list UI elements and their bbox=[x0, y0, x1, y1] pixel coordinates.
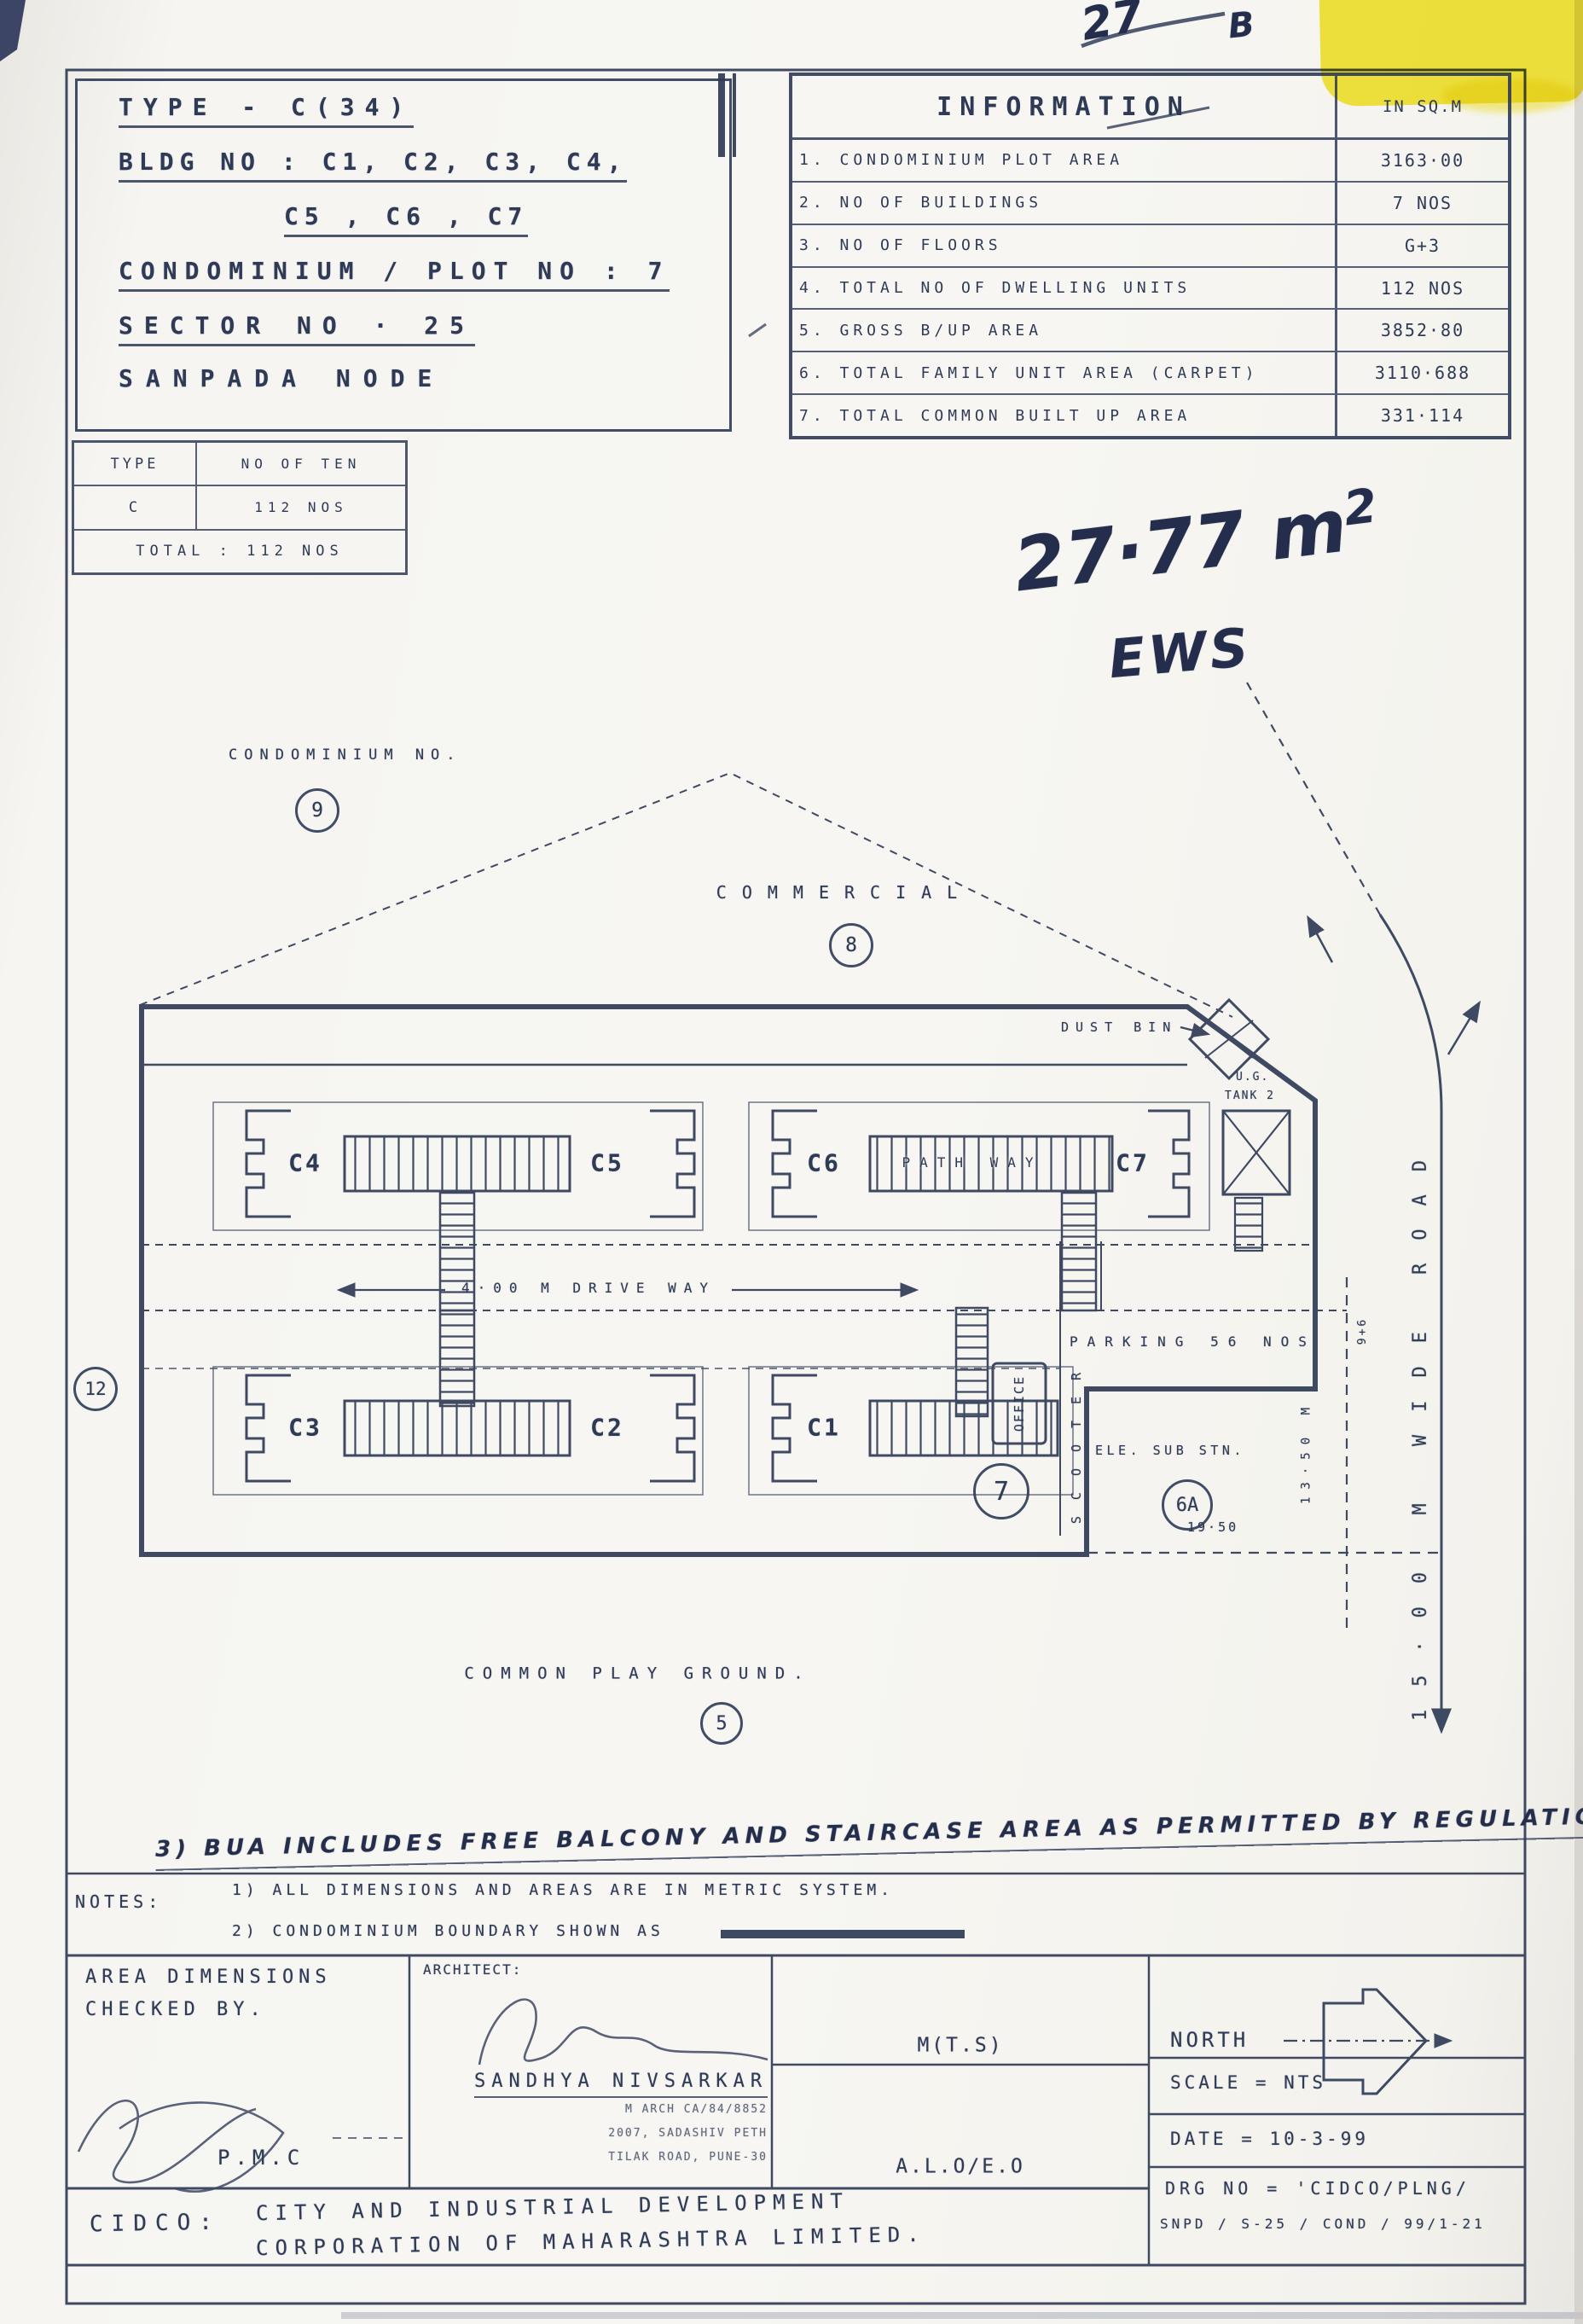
table-row: 5. GROSS B/UP AREA3852·80 bbox=[792, 310, 1508, 352]
row-label: 6. TOTAL FAMILY UNIT AREA (CARPET) bbox=[792, 352, 1335, 393]
title-bldg-2: C5 , C6 , C7 bbox=[284, 204, 528, 237]
building-label-c4: C4 bbox=[288, 1151, 322, 1177]
drg-no-line1: DRG NO = 'CIDCO/PLNG/ bbox=[1165, 2179, 1470, 2198]
authority-mts: M(T.S) bbox=[917, 2035, 1003, 2056]
table-row: C 112 NOS bbox=[74, 486, 405, 530]
play-ground-label: COMMON PLAY GROUND. bbox=[464, 1665, 811, 1683]
table-row: 7. TOTAL COMMON BUILT UP AREA331·114 bbox=[792, 395, 1508, 436]
plot-boundary bbox=[142, 1007, 1315, 1554]
information-header: INFORMATION IN SQ.M bbox=[792, 76, 1508, 140]
handwritten-ews-note: EWS bbox=[1106, 619, 1254, 689]
information-unit: IN SQ.M bbox=[1335, 76, 1508, 137]
condominium-no-label: CONDOMINIUM NO. bbox=[229, 747, 462, 764]
table-row: TYPE NO OF TEN bbox=[74, 443, 405, 486]
plot-circle-7: 7 bbox=[973, 1463, 1029, 1519]
title-type: TYPE - C(34) bbox=[119, 95, 414, 128]
building-label-c6: C6 bbox=[807, 1151, 841, 1177]
drawing-sheet: 27 B TYPE - C(34) BLDG NO : C1, C2, C3, … bbox=[0, 0, 1583, 2324]
parcel-circle-9: 9 bbox=[295, 788, 339, 833]
architect-signature bbox=[479, 2000, 768, 2065]
drive-way-label: 4·00 M DRIVE WAY bbox=[461, 1281, 716, 1296]
tenement-type-header: TYPE bbox=[74, 443, 197, 485]
dimension-19-50: 19·50 bbox=[1187, 1520, 1238, 1535]
stair-ladders bbox=[440, 1193, 1096, 1416]
title-plot: CONDOMINIUM / PLOT NO : 7 bbox=[119, 259, 670, 292]
row-value: G+3 bbox=[1335, 225, 1508, 266]
handwritten-corner-note-b: B bbox=[1226, 6, 1256, 46]
table-row: TOTAL : 112 NOS bbox=[74, 531, 405, 572]
information-title: INFORMATION bbox=[792, 76, 1335, 137]
ug-tank-label-1: U.G. bbox=[1236, 1072, 1269, 1084]
office-label: OFFICE bbox=[1012, 1375, 1027, 1432]
row-label: 2. NO OF BUILDINGS bbox=[792, 183, 1335, 224]
parcel-circle-12: 12 bbox=[73, 1367, 118, 1411]
table-row: 2. NO OF BUILDINGS7 NOS bbox=[792, 183, 1508, 225]
row-label: 1. CONDOMINIUM PLOT AREA bbox=[792, 140, 1335, 181]
tenement-total: TOTAL : 112 NOS bbox=[74, 531, 405, 572]
row-value: 3163·00 bbox=[1335, 140, 1508, 181]
dust-bin-label: DUST BIN bbox=[1061, 1020, 1177, 1035]
area-note-superscript: 2 bbox=[1341, 478, 1380, 536]
checked-by-org: P.M.C bbox=[217, 2147, 304, 2169]
building-label-c2: C2 bbox=[590, 1415, 624, 1442]
title-bldg-1: BLDG NO : C1, C2, C3, C4, bbox=[119, 149, 627, 183]
tenement-table: TYPE NO OF TEN C 112 NOS TOTAL : 112 NOS bbox=[72, 440, 408, 575]
parking-label: PARKING 56 NOS bbox=[1070, 1334, 1316, 1350]
note-1: 1) ALL DIMENSIONS AND AREAS ARE IN METRI… bbox=[232, 1882, 894, 1899]
ele-sub-stn-label: ELE. SUB STN. bbox=[1095, 1444, 1245, 1458]
architect-reg: M ARCH CA/84/8852 bbox=[546, 2104, 768, 2116]
building-label-c3: C3 bbox=[288, 1415, 322, 1442]
dimension-13-50: 13·50 M bbox=[1300, 1400, 1313, 1504]
note-2: 2) CONDOMINIUM BOUNDARY SHOWN AS bbox=[232, 1923, 664, 1940]
authority-alo: A.L.O/E.O bbox=[896, 2156, 1025, 2177]
date-value: DATE = 10-3-99 bbox=[1170, 2129, 1369, 2149]
row-value: 112 NOS bbox=[1335, 268, 1508, 309]
row-value: 7 NOS bbox=[1335, 183, 1508, 224]
table-row: 6. TOTAL FAMILY UNIT AREA (CARPET)3110·6… bbox=[792, 352, 1508, 395]
boundary-legend-bar bbox=[721, 1930, 965, 1938]
architect-label: ARCHITECT: bbox=[423, 1962, 522, 1978]
row-label: 4. TOTAL NO OF DWELLING UNITS bbox=[792, 268, 1335, 309]
parcel-circle-5: 5 bbox=[700, 1702, 743, 1745]
ug-tank-symbol bbox=[1223, 1111, 1290, 1251]
dimension-corner: 9+6 bbox=[1357, 1317, 1369, 1345]
scale-value: SCALE = NTS bbox=[1170, 2073, 1326, 2093]
row-value: 3852·80 bbox=[1335, 310, 1508, 351]
row-label: 5. GROSS B/UP AREA bbox=[792, 310, 1335, 351]
building-label-c7: C7 bbox=[1116, 1151, 1150, 1177]
org-abbr: CIDCO: bbox=[90, 2211, 221, 2237]
table-row: 1. CONDOMINIUM PLOT AREA3163·00 bbox=[792, 140, 1508, 183]
building-label-c1: C1 bbox=[807, 1415, 841, 1442]
architect-addr2: TILAK ROAD, PUNE-30 bbox=[546, 2152, 768, 2164]
architect-name: SANDHYA NIVSARKAR bbox=[474, 2071, 768, 2098]
drg-no-line2: SNPD / S-25 / COND / 99/1-21 bbox=[1160, 2217, 1486, 2232]
row-value: 3110·688 bbox=[1335, 352, 1508, 393]
title-sector: SECTOR NO · 25 bbox=[119, 313, 475, 346]
scooter-label: SCOOTER bbox=[1070, 1357, 1084, 1524]
commercial-label: COMMERCIAL bbox=[716, 883, 972, 902]
title-block: TYPE - C(34) BLDG NO : C1, C2, C3, C4, C… bbox=[75, 78, 732, 432]
row-label: 3. NO OF FLOORS bbox=[792, 225, 1335, 266]
information-table: INFORMATION IN SQ.M 1. CONDOMINIUM PLOT … bbox=[789, 73, 1511, 439]
tenement-type: C bbox=[74, 486, 197, 528]
tenement-count: 112 NOS bbox=[197, 486, 405, 528]
checked-by-line2: CHECKED BY. bbox=[85, 2000, 266, 2020]
building-label-c5: C5 bbox=[590, 1151, 624, 1177]
architect-addr1: 2007, SADASHIV PETH bbox=[546, 2128, 768, 2140]
table-row: 4. TOTAL NO OF DWELLING UNITS112 NOS bbox=[792, 268, 1508, 311]
road-label: 15·00 M WIDE ROAD bbox=[1411, 1137, 1431, 1721]
ug-tank-label-2: TANK 2 bbox=[1225, 1090, 1275, 1102]
table-row: 3. NO OF FLOORSG+3 bbox=[792, 225, 1508, 268]
north-label: NORTH bbox=[1170, 2029, 1249, 2051]
notes-label: NOTES: bbox=[75, 1892, 162, 1911]
tenement-count-header: NO OF TEN bbox=[197, 443, 405, 485]
checked-by-line1: AREA DIMENSIONS bbox=[85, 1967, 332, 1988]
row-value: 331·114 bbox=[1335, 395, 1508, 436]
title-node: SANPADA NODE bbox=[119, 366, 444, 392]
row-label: 7. TOTAL COMMON BUILT UP AREA bbox=[792, 395, 1335, 436]
parcel-circle-8: 8 bbox=[829, 923, 873, 967]
path-way-label: PATH WAY bbox=[902, 1155, 1042, 1171]
